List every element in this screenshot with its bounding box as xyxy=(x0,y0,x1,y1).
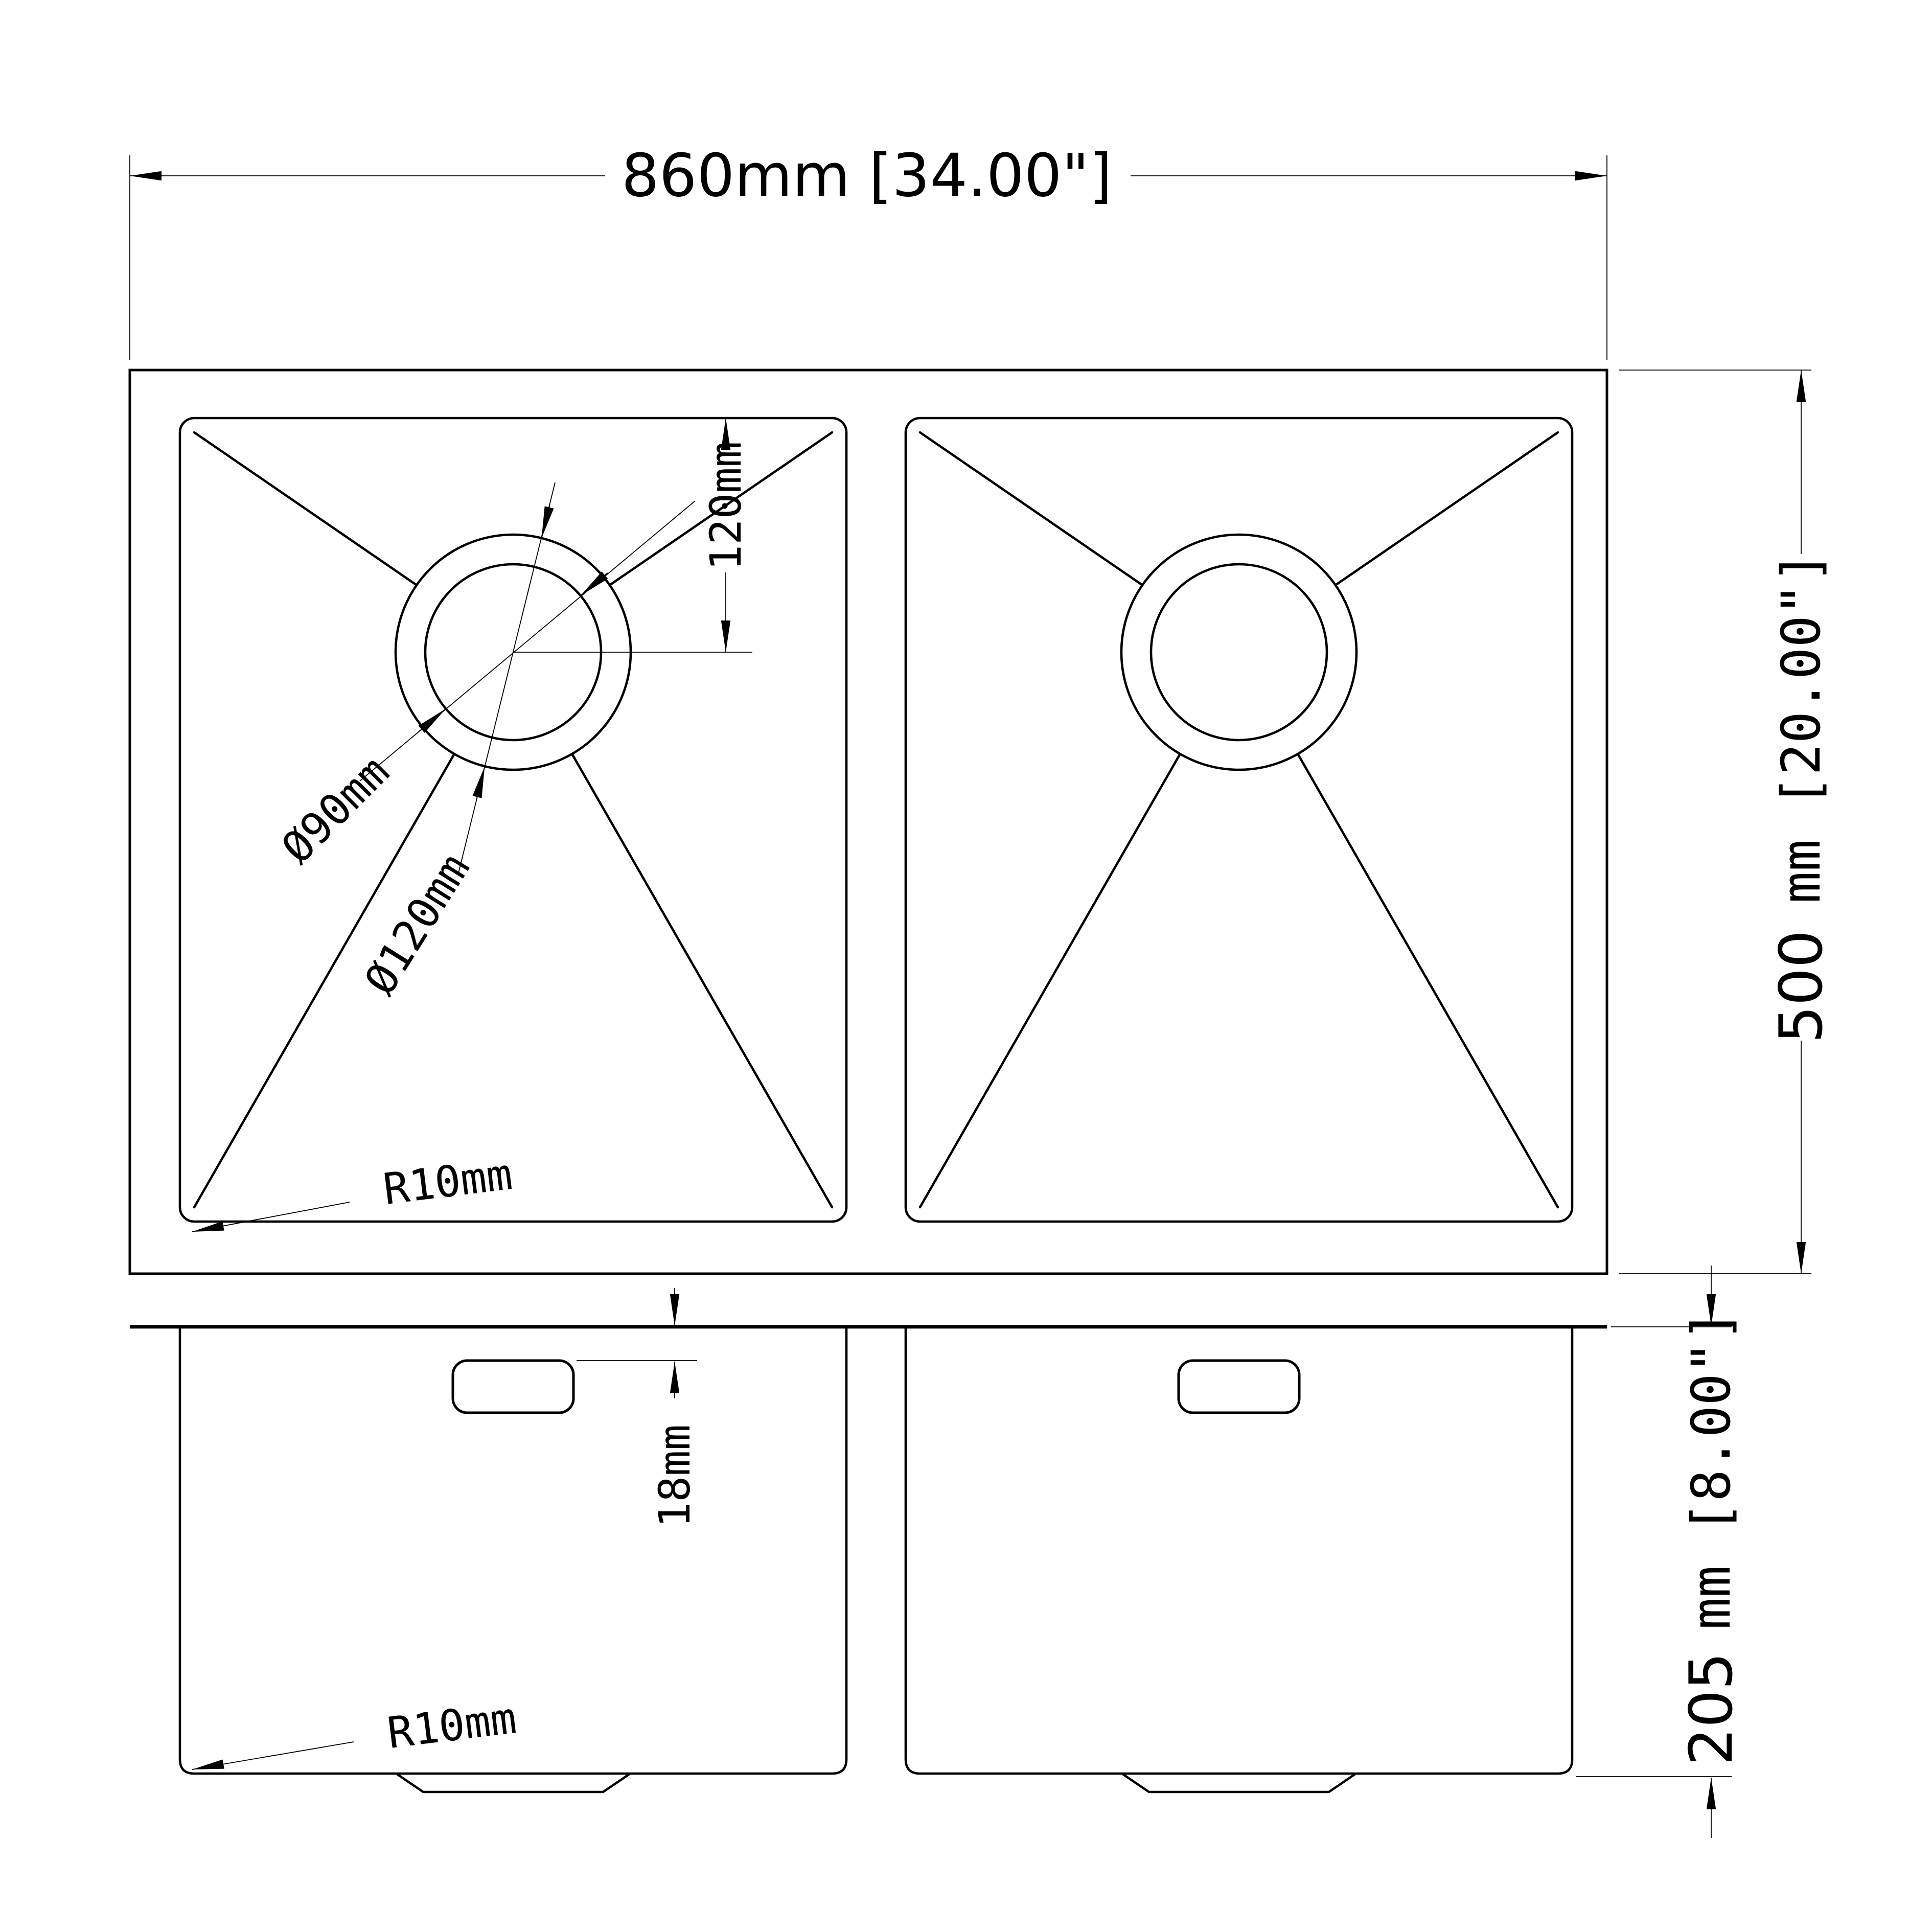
right-bowl-diagonal-tr xyxy=(1336,432,1558,585)
dim-bowl-depth-unit: mm [8.00"] xyxy=(1680,1309,1742,1629)
front-view-left-overflow-opening xyxy=(453,1361,573,1413)
dim-drain-offset-label: 120mm xyxy=(701,442,751,571)
drain-inner-diameter-label: Ø90mm xyxy=(272,746,399,873)
front-view: 18mm 205 mm [8.00"] R10mm xyxy=(130,1266,1746,1838)
right-bowl-diagonal-br xyxy=(1298,754,1558,1207)
drain-outer-diameter-label: Ø120mm xyxy=(355,845,479,1003)
corner-radius-label-front-view: R10mm xyxy=(385,1693,519,1758)
front-view-left-drain-boss xyxy=(398,1775,629,1792)
dia120-arrow-upper xyxy=(542,504,550,538)
drawing-page: 860mm [34.00"] 500 mm [20.00"] 120mm Ø90… xyxy=(0,0,1932,1932)
dim-bowl-depth-value: 205 xyxy=(1677,1652,1746,1765)
corner-radius-label-top-view: R10mm xyxy=(381,1149,515,1214)
dim-overall-depth-label: 500 mm [20.00"] xyxy=(1767,551,1836,1044)
corner-radius-leader-top-view xyxy=(192,1202,350,1232)
right-bowl-diagonal-bl xyxy=(920,754,1180,1207)
corner-radius-leader-front-view xyxy=(192,1742,354,1769)
right-drain-hole-circle xyxy=(1151,564,1327,740)
dim-overall-depth-value: 500 xyxy=(1767,930,1836,1043)
front-view-right-bowl-profile xyxy=(906,1327,1572,1774)
dim-rim-height-label: 18mm xyxy=(650,1424,700,1528)
front-view-right-drain-boss xyxy=(1123,1775,1354,1792)
left-bowl-diagonal-tl xyxy=(194,432,417,585)
dia90-arrow-lower xyxy=(419,709,446,732)
dim-overall-width-label: 860mm [34.00"] xyxy=(622,142,1112,211)
right-bowl-diagonal-tl xyxy=(920,432,1142,585)
top-view: 860mm [34.00"] 500 mm [20.00"] 120mm Ø90… xyxy=(130,142,1836,1274)
right-drain-flange-circle xyxy=(1121,535,1356,770)
dim-bowl-depth-label: 205 mm [8.00"] xyxy=(1677,1309,1746,1765)
left-bowl-diagonal-br xyxy=(572,754,832,1207)
top-view-right-bowl xyxy=(906,418,1572,1222)
dim-overall-depth-unit: mm [20.00"] xyxy=(1770,551,1832,904)
dia90-arrow-upper xyxy=(581,573,608,595)
sink-technical-drawing: 860mm [34.00"] 500 mm [20.00"] 120mm Ø90… xyxy=(0,0,1932,1932)
front-view-right-overflow-opening xyxy=(1179,1361,1299,1413)
dia120-arrow-lower xyxy=(476,766,485,800)
